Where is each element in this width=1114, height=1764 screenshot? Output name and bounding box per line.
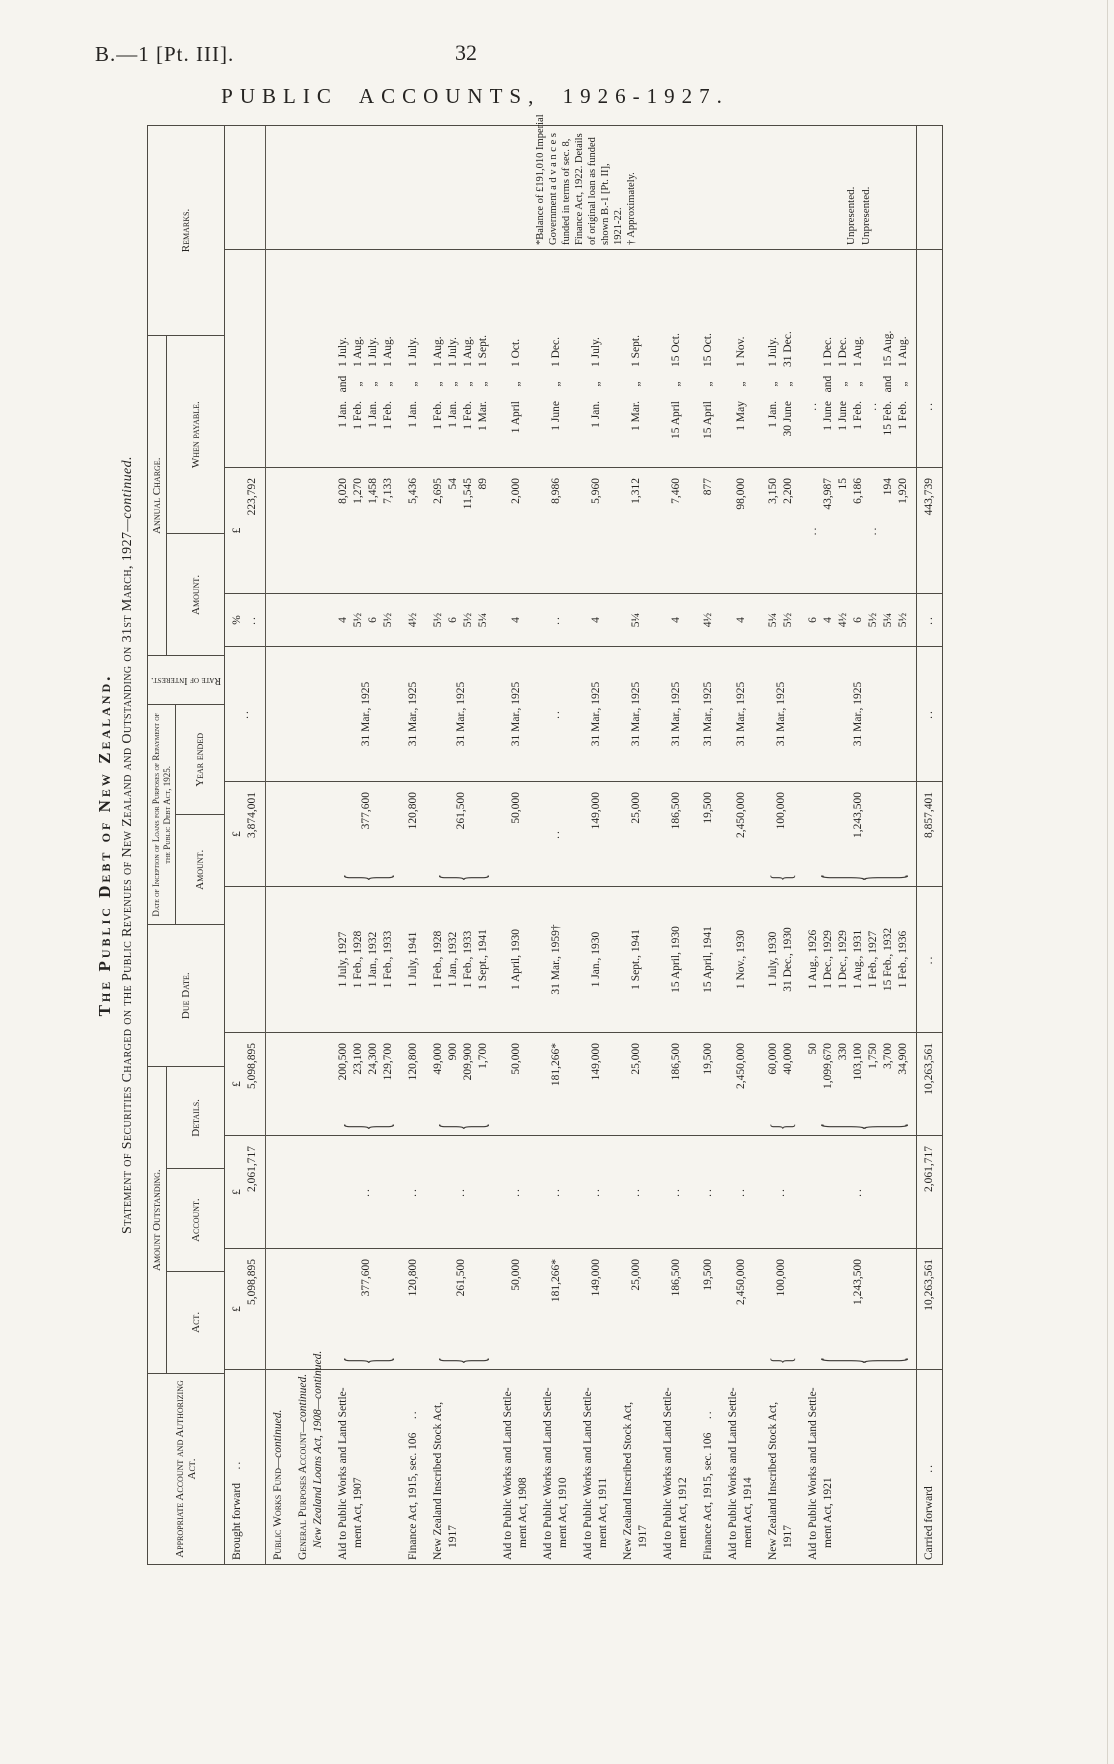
cell-due-date: 1 Sept., 1941 xyxy=(616,886,656,1032)
header-rate-of-interest-text: Rate of Interest. xyxy=(151,675,221,686)
payable-first-date: 1 June xyxy=(549,401,564,463)
value-line: 900 xyxy=(446,1037,461,1131)
value-line: 4 xyxy=(509,598,524,642)
footnote-line: Finance Act, 1922. Details xyxy=(573,49,586,245)
value-line: 49,000 xyxy=(431,1037,446,1131)
cell-year-ended: 31 Mar., 1925 xyxy=(331,646,401,781)
payable-second-date: 1 July. xyxy=(406,254,421,367)
row-label-text: New Zealand Inscribed Stock Act, xyxy=(767,1402,779,1560)
leader-dots: .. xyxy=(702,1409,714,1432)
cell-account-amount: .. xyxy=(656,1135,696,1248)
cell-details-amount: 186,500 xyxy=(656,1032,696,1135)
value-line: 1 July, 1930 xyxy=(766,891,781,1028)
row-label-line: New Zealand Loans Act, 1908—continued. xyxy=(311,1374,326,1560)
cell-when-payable: 1 Feb.„1 Aug.1 Jan.„1 July.1 Feb.„1 Aug.… xyxy=(426,249,496,467)
cell-annual-charge-amount: 8,986 xyxy=(536,467,576,593)
payable-second-date: 1 Aug. xyxy=(896,254,911,367)
payable-connector: „ xyxy=(896,367,911,401)
payable-second-date: 1 July. xyxy=(446,254,461,367)
cell-annual-charge-amount xyxy=(291,467,331,593)
cell-appropriate-account: Aid to Public Works and Land Settle-ment… xyxy=(536,1369,576,1564)
value-line: 149,000 xyxy=(589,1253,604,1365)
value-line: 6 xyxy=(851,598,866,642)
row-label-text: ment Act, 1907 xyxy=(352,1477,364,1548)
value-line: 209,900 xyxy=(461,1037,476,1131)
header-charge-amount: Amount. xyxy=(167,533,224,655)
cell-remarks: Unpresented.Unpresented. xyxy=(801,36,916,249)
value-line: 25,000 xyxy=(629,1037,644,1131)
cell-annual-charge-amount: ..43,987156,186..1941,920 xyxy=(801,467,916,593)
value-line: £ xyxy=(230,1037,245,1131)
payable-connector: „ xyxy=(381,367,396,401)
value-line: 186,500 xyxy=(669,1253,684,1365)
table-row: Aid to Public Works and Land Settle-ment… xyxy=(576,126,616,1564)
payable-second-date: 1 Aug. xyxy=(381,254,396,367)
row-label-text: Aid to Public Works and Land Settle- xyxy=(727,1387,739,1560)
grouping-brace: { xyxy=(461,1122,479,1132)
brace-glyph: { xyxy=(806,875,911,882)
cell-act-amount: 19,500 xyxy=(696,1248,721,1369)
value-line: 2,061,717 xyxy=(245,1140,260,1244)
cell-remarks xyxy=(721,36,761,249)
cell-appropriate-account: General Purposes Account—continued.New Z… xyxy=(291,1369,331,1564)
payable-connector: and xyxy=(336,367,351,401)
payable-line: 1 April„1 Oct. xyxy=(509,254,524,463)
cell-due-date: 15 April, 1941 xyxy=(696,886,721,1032)
value-line: £ xyxy=(230,472,245,589)
cell-rate-of-interest xyxy=(266,593,291,646)
value-line: 1 Feb., 1936 xyxy=(896,891,911,1028)
value-line: 4 xyxy=(336,598,351,642)
cell-account-amount: .. xyxy=(496,1135,536,1248)
payable-second-date: 1 Dec. xyxy=(821,254,836,367)
payable-line: 15 April„15 Oct. xyxy=(701,254,716,463)
payable-second-date: 1 Nov. xyxy=(734,254,749,367)
row-label-line: ment Act, 1910 xyxy=(556,1374,571,1560)
payable-line: .. xyxy=(866,254,881,463)
value-line: 1,099,670 xyxy=(821,1037,836,1131)
value-line: 10,263,561 xyxy=(922,1253,937,1365)
grouping-brace: { xyxy=(859,873,877,883)
payable-second-date: 31 Dec. xyxy=(781,254,796,367)
value-line: 5,098,895 xyxy=(245,1037,260,1131)
payable-second-date xyxy=(922,254,937,367)
cell-act-amount: 186,500 xyxy=(656,1248,696,1369)
value-line: 5,960 xyxy=(589,472,604,589)
cell-act-amount: {100,000 xyxy=(761,1248,801,1369)
footnote-line: of original loan as funded xyxy=(586,49,599,245)
value-line: 181,266* xyxy=(549,1253,564,1365)
value-line: 2,450,000 xyxy=(734,786,749,882)
cell-year-ended: 31 Mar., 1925 xyxy=(656,646,696,781)
payable-first-date: 1 Jan. xyxy=(406,401,421,463)
value-line: 4½ xyxy=(701,598,716,642)
cell-rate-of-interest: 5½65½5¼ xyxy=(426,593,496,646)
cell-act-amount xyxy=(266,1248,291,1369)
header-group-annual-charge: Annual Charge. Amount. When payable. xyxy=(148,335,224,655)
payable-second-date: 1 Aug. xyxy=(851,254,866,367)
cell-annual-charge-amount: 5,960 xyxy=(576,467,616,593)
brace-glyph: { xyxy=(431,875,491,882)
row-label-line: Finance Act, 1915, sec. 106 .. xyxy=(406,1374,421,1560)
cell-details-amount xyxy=(266,1032,291,1135)
payable-first-date: 1 Mar. xyxy=(629,401,644,463)
value-line: 5¼ xyxy=(476,598,491,642)
value-line: 1,270 xyxy=(351,472,366,589)
payable-connector: „ xyxy=(629,367,644,401)
cell-details-amount: 2,450,000 xyxy=(721,1032,761,1135)
page-edge-line xyxy=(1107,0,1108,1764)
value-line: 19,500 xyxy=(701,1253,716,1365)
payable-first-date: 1 Feb. xyxy=(351,401,366,463)
payable-second-date: 1 Dec. xyxy=(836,254,851,367)
cell-appropriate-account: Brought forward .. xyxy=(225,1369,265,1564)
row-label-line: Public Works Fund—continued. xyxy=(271,1374,286,1560)
value-line: 1 Aug., 1931 xyxy=(851,891,866,1028)
value-line: 31 Mar., 1959† xyxy=(549,891,564,1028)
value-line: 31 Dec., 1930 xyxy=(781,891,796,1028)
cell-due-date: 1 July, 193031 Dec., 1930 xyxy=(761,886,801,1032)
row-label-line: Finance Act, 1915, sec. 106 .. xyxy=(701,1374,716,1560)
table-subtitle-continued: —continued. xyxy=(120,456,135,532)
value-line: 1,700 xyxy=(476,1037,491,1131)
value-line: 15 April, 1941 xyxy=(701,891,716,1028)
cell-due-date: 1 Feb., 19281 Jan., 19321 Feb., 19331 Se… xyxy=(426,886,496,1032)
cell-inception-amount: {377,600 xyxy=(331,781,401,886)
cell-annual-charge-amount: 98,000 xyxy=(721,467,761,593)
payable-line: 1 June„1 Dec. xyxy=(549,254,564,463)
payable-connector: „ xyxy=(701,367,716,401)
table-row: New Zealand Inscribed Stock Act,1917{261… xyxy=(426,126,496,1564)
cell-when-payable xyxy=(266,249,291,467)
value-line: 98,000 xyxy=(734,472,749,589)
grouping-brace: { xyxy=(366,1356,384,1366)
cell-year-ended: .. xyxy=(536,646,576,781)
value-line: .. xyxy=(734,1140,749,1244)
payable-line: 1 Feb.„1 Aug. xyxy=(431,254,446,463)
value-line: .. xyxy=(549,786,564,882)
row-label-text: New Zealand Inscribed Stock Act, xyxy=(622,1402,634,1560)
cell-details-amount: 120,800 xyxy=(401,1032,426,1135)
payable-second-date: 1 July. xyxy=(336,254,351,367)
value-line: 5½ xyxy=(381,598,396,642)
payable-connector xyxy=(806,367,821,401)
row-label-text: Aid to Public Works and Land Settle- xyxy=(662,1387,674,1560)
value-line: 31 Mar., 1925 xyxy=(629,651,644,777)
table-row: General Purposes Account—continued.New Z… xyxy=(291,126,331,1564)
payable-line: 15 April„15 Oct. xyxy=(669,254,684,463)
debt-table-body: Brought forward ..£5,098,895£2,061,717£5… xyxy=(225,126,942,1564)
payable-line: 1 Jan.„1 July. xyxy=(406,254,421,463)
cell-year-ended: 31 Mar., 1925 xyxy=(496,646,536,781)
value-line: .. xyxy=(851,1140,866,1244)
cell-annual-charge-amount: 7,460 xyxy=(656,467,696,593)
value-line: 1 Feb., 1928 xyxy=(431,891,446,1028)
value-line: 2,061,717 xyxy=(922,1140,937,1244)
table-row: New Zealand Inscribed Stock Act,191725,0… xyxy=(616,126,656,1564)
brace-glyph: { xyxy=(431,1124,491,1131)
cell-account-amount: .. xyxy=(536,1135,576,1248)
cell-year-ended: 31 Mar., 1925 xyxy=(721,646,761,781)
payable-second-date: 15 Oct. xyxy=(669,254,684,367)
row-label-line: ment Act, 1914 xyxy=(741,1374,756,1560)
grouping-brace: { xyxy=(781,873,799,883)
value-line: 5½ xyxy=(896,598,911,642)
cell-details-amount: 25,000 xyxy=(616,1032,656,1135)
value-line: 194 xyxy=(881,472,896,589)
cell-rate-of-interest: .. xyxy=(917,593,942,646)
header-inception: Date of Inception of Loans for Purposes … xyxy=(148,705,176,924)
cell-details-amount: 181,266* xyxy=(536,1032,576,1135)
cell-when-payable: 1 Jan.„1 July. xyxy=(576,249,616,467)
cell-appropriate-account: Finance Act, 1915, sec. 106 .. xyxy=(401,1369,426,1564)
value-line: 186,500 xyxy=(669,786,684,882)
row-label-line: New Zealand Inscribed Stock Act, xyxy=(621,1374,636,1560)
cell-year-ended xyxy=(291,646,331,781)
cell-inception-amount: 120,800 xyxy=(401,781,426,886)
value-line: 3,874,001 xyxy=(245,786,260,882)
cell-annual-charge-amount: 1,312 xyxy=(616,467,656,593)
debt-table-header: Appropriate Account and Authorizing Act.… xyxy=(148,126,225,1564)
cell-account-amount: £2,061,717 xyxy=(225,1135,265,1248)
remark-line: Unpresented. xyxy=(859,40,874,245)
cell-inception-amount: 2,450,000 xyxy=(721,781,761,886)
cell-when-payable: 1 Jan.„1 July.30 June„31 Dec. xyxy=(761,249,801,467)
grouping-brace: { xyxy=(859,1356,877,1366)
value-line: 31 Mar., 1925 xyxy=(701,651,716,777)
payable-first-date: 1 June xyxy=(836,401,851,463)
value-line: % xyxy=(230,598,245,642)
cell-account-amount: .. xyxy=(426,1135,496,1248)
value-line: 330 xyxy=(836,1037,851,1131)
payable-connector: „ xyxy=(851,367,866,401)
row-label-text: Brought forward xyxy=(231,1483,243,1560)
payable-connector: „ xyxy=(366,367,381,401)
brace-glyph: { xyxy=(766,875,796,882)
value-line: 50,000 xyxy=(509,786,524,882)
document-reference: B.—1 [Pt. III]. xyxy=(95,42,234,67)
cell-when-payable: 1 Jan.and1 July.1 Feb.„1 Aug.1 Jan.„1 Ju… xyxy=(331,249,401,467)
value-line: 1,312 xyxy=(629,472,644,589)
value-line: 149,000 xyxy=(589,1037,604,1131)
value-line: 5½ xyxy=(781,598,796,642)
cell-remarks xyxy=(696,36,721,249)
cell-when-payable: 1 May„1 Nov. xyxy=(721,249,761,467)
value-line: 1 Feb., 1928 xyxy=(351,891,366,1028)
payable-first-date: 15 April xyxy=(669,401,684,463)
value-line: 5¼ xyxy=(629,598,644,642)
row-label-line: General Purposes Account—continued. xyxy=(296,1374,311,1560)
cell-when-payable: 15 April„15 Oct. xyxy=(656,249,696,467)
value-line: .. xyxy=(406,1140,421,1244)
row-label-line: ment Act, 1921 xyxy=(821,1374,836,1560)
value-line: 2,695 xyxy=(431,472,446,589)
payable-first-date: 1 June xyxy=(821,401,836,463)
payable-first-date: 1 May xyxy=(734,401,749,463)
row-label-text: ment Act, 1921 xyxy=(822,1477,834,1548)
value-line: 1 Sept., 1941 xyxy=(476,891,491,1028)
row-label-text: Aid to Public Works and Land Settle- xyxy=(337,1387,349,1560)
value-line: 8,857,401 xyxy=(922,786,937,882)
payable-connector: and xyxy=(821,367,836,401)
payable-line: 1 Jan.„1 July. xyxy=(446,254,461,463)
cell-act-amount: 181,266* xyxy=(536,1248,576,1369)
value-line: .. xyxy=(866,472,881,589)
continued-suffix: —continued. xyxy=(272,1410,284,1468)
value-line: 1,750 xyxy=(866,1037,881,1131)
payable-first-date: 15 April xyxy=(701,401,716,463)
header-annual-charge: Annual Charge. xyxy=(148,336,167,655)
cell-act-amount: 2,450,000 xyxy=(721,1248,761,1369)
value-line: .. xyxy=(589,1140,604,1244)
value-line: 261,500 xyxy=(454,786,469,882)
cell-details-amount: £5,098,895 xyxy=(225,1032,265,1135)
value-line: 5½ xyxy=(351,598,366,642)
row-label-line: Brought forward .. xyxy=(230,1374,245,1560)
cell-inception-amount: 50,000 xyxy=(496,781,536,886)
cell-account-amount: .. xyxy=(401,1135,426,1248)
value-line: 10,263,561 xyxy=(922,1037,937,1131)
row-label-line: Aid to Public Works and Land Settle- xyxy=(501,1374,516,1560)
cell-year-ended: 31 Mar., 1925 xyxy=(426,646,496,781)
value-line: 43,987 xyxy=(821,472,836,589)
value-line: .. xyxy=(806,472,821,589)
payable-first-date: 1 Jan. xyxy=(446,401,461,463)
grouping-brace: { xyxy=(781,1356,799,1366)
row-label-text: General Purposes Account xyxy=(297,1432,309,1560)
payable-first-date: 1 Jan. xyxy=(366,401,381,463)
cell-rate-of-interest: 4½ xyxy=(696,593,721,646)
cell-rate-of-interest: 644½65½5¼5½ xyxy=(801,593,916,646)
table-row: Aid to Public Works and Land Settle-ment… xyxy=(721,126,761,1564)
value-line: .. xyxy=(774,1140,789,1244)
value-line: 31 Mar., 1925 xyxy=(734,651,749,777)
cell-account-amount xyxy=(266,1135,291,1248)
value-line: 31 Mar., 1925 xyxy=(359,651,374,777)
cell-details-amount: {49,000900209,9001,700 xyxy=(426,1032,496,1135)
table-subtitle: Statement of Securities Charged on the P… xyxy=(119,125,137,1565)
payable-first-date: 1 April xyxy=(509,401,524,463)
payable-first-date: 1 Feb. xyxy=(381,401,396,463)
cell-inception-amount xyxy=(266,781,291,886)
cell-remarks xyxy=(496,36,536,249)
row-label-line: ment Act, 1912 xyxy=(676,1374,691,1560)
payable-line: 1 May„1 Nov. xyxy=(734,254,749,463)
value-line: 1 Dec., 1929 xyxy=(836,891,851,1028)
value-line: 1,243,500 xyxy=(851,1253,866,1365)
payable-second-date: 1 Dec. xyxy=(549,254,564,367)
cell-details-amount: {501,099,670330103,1001,7503,70034,900 xyxy=(801,1032,916,1135)
cell-annual-charge-amount: 443,739 xyxy=(917,467,942,593)
value-line: 60,000 xyxy=(766,1037,781,1131)
cell-inception-amount: 19,500 xyxy=(696,781,721,886)
value-line: 7,133 xyxy=(381,472,396,589)
payable-first-date: 1 Feb. xyxy=(431,401,446,463)
continued-suffix: —continued. xyxy=(297,1374,309,1432)
payable-first-date: 1 Feb. xyxy=(896,401,911,463)
row-label-text: ment Act, 1914 xyxy=(742,1477,754,1548)
cell-rate-of-interest: 5¼5½ xyxy=(761,593,801,646)
cell-act-amount: 25,000 xyxy=(616,1248,656,1369)
cell-due-date xyxy=(291,886,331,1032)
brace-glyph: { xyxy=(766,1124,796,1131)
cell-due-date: 1 April, 1930 xyxy=(496,886,536,1032)
value-line: 8,986 xyxy=(549,472,564,589)
cell-appropriate-account: Aid to Public Works and Land Settle-ment… xyxy=(576,1369,616,1564)
grouping-brace: { xyxy=(781,1122,799,1132)
row-label-text: Aid to Public Works and Land Settle- xyxy=(807,1387,819,1560)
payable-line: 1 Jan.and1 July. xyxy=(336,254,351,463)
value-line: 15 Feb., 1932 xyxy=(881,891,896,1028)
value-line: 129,700 xyxy=(381,1037,396,1131)
payable-second-date: 15 Oct. xyxy=(701,254,716,367)
value-line: 23,100 xyxy=(351,1037,366,1131)
scanned-ledger-page: { "page": { "doc_ref": "B.—1 [Pt. III]."… xyxy=(0,0,1114,1764)
cell-inception-amount: 8,857,401 xyxy=(917,781,942,886)
value-line: 11,545 xyxy=(461,472,476,589)
value-line: .. xyxy=(454,1140,469,1244)
cell-due-date: 1 July, 1941 xyxy=(401,886,426,1032)
cell-appropriate-account: Aid to Public Works and Land Settle-ment… xyxy=(656,1369,696,1564)
value-line: 120,800 xyxy=(406,1253,421,1365)
payable-first-date: 30 June xyxy=(781,401,796,463)
row-label-line: New Zealand Inscribed Stock Act, xyxy=(431,1374,446,1560)
table-row: New Zealand Inscribed Stock Act,1917{100… xyxy=(761,126,801,1564)
cell-account-amount: .. xyxy=(761,1135,801,1248)
header-group-inception: Date of Inception of Loans for Purposes … xyxy=(148,704,224,924)
cell-account-amount: .. xyxy=(331,1135,401,1248)
value-line: 8,020 xyxy=(336,472,351,589)
row-label-text: New Zealand Inscribed Stock Act, xyxy=(432,1402,444,1560)
cell-details-amount: 19,500 xyxy=(696,1032,721,1135)
value-line: 19,500 xyxy=(701,786,716,882)
remarks-footnote: *Balance of £191,010 ImperialGovernment … xyxy=(534,49,638,245)
cell-year-ended: 31 Mar., 1925 xyxy=(696,646,721,781)
table-row: Brought forward ..£5,098,895£2,061,717£5… xyxy=(225,126,266,1564)
row-label-line: 1917 xyxy=(636,1374,651,1560)
value-line: 1 July, 1927 xyxy=(336,891,351,1028)
payable-line: 1 Mar.„1 Sept. xyxy=(476,254,491,463)
value-line: 5½ xyxy=(431,598,446,642)
payable-line: 1 Feb.„1 Aug. xyxy=(896,254,911,463)
cell-account-amount: .. xyxy=(576,1135,616,1248)
value-line: .. xyxy=(509,1140,524,1244)
cell-rate-of-interest xyxy=(291,593,331,646)
header-group-amount-outstanding: Amount Outstanding. Act. Account. Detail… xyxy=(148,1066,224,1373)
cell-year-ended xyxy=(266,646,291,781)
cell-annual-charge-amount: 3,1502,200 xyxy=(761,467,801,593)
value-line: .. xyxy=(701,1140,716,1244)
payable-connector: „ xyxy=(734,367,749,401)
value-line: 6 xyxy=(366,598,381,642)
brace-glyph: { xyxy=(336,875,396,882)
cell-when-payable: 1 Mar.„1 Sept. xyxy=(616,249,656,467)
brace-glyph: { xyxy=(336,1358,396,1365)
cell-inception-amount: 25,000 xyxy=(616,781,656,886)
payable-connector: and xyxy=(881,367,896,401)
value-line: 877 xyxy=(701,472,716,589)
value-line: 4½ xyxy=(406,598,421,642)
row-label-line: ment Act, 1911 xyxy=(596,1374,611,1560)
value-line: £ xyxy=(230,1253,245,1365)
cell-when-payable: 1 June„1 Dec. xyxy=(536,249,576,467)
cell-details-amount xyxy=(291,1032,331,1135)
payable-second-date: 1 Aug. xyxy=(431,254,446,367)
payable-line: 1 Jan.„1 July. xyxy=(366,254,381,463)
table-subtitle-text: Statement of Securities Charged on the P… xyxy=(120,532,135,1234)
row-label-line: Aid to Public Works and Land Settle- xyxy=(541,1374,556,1560)
value-line: 5¼ xyxy=(766,598,781,642)
